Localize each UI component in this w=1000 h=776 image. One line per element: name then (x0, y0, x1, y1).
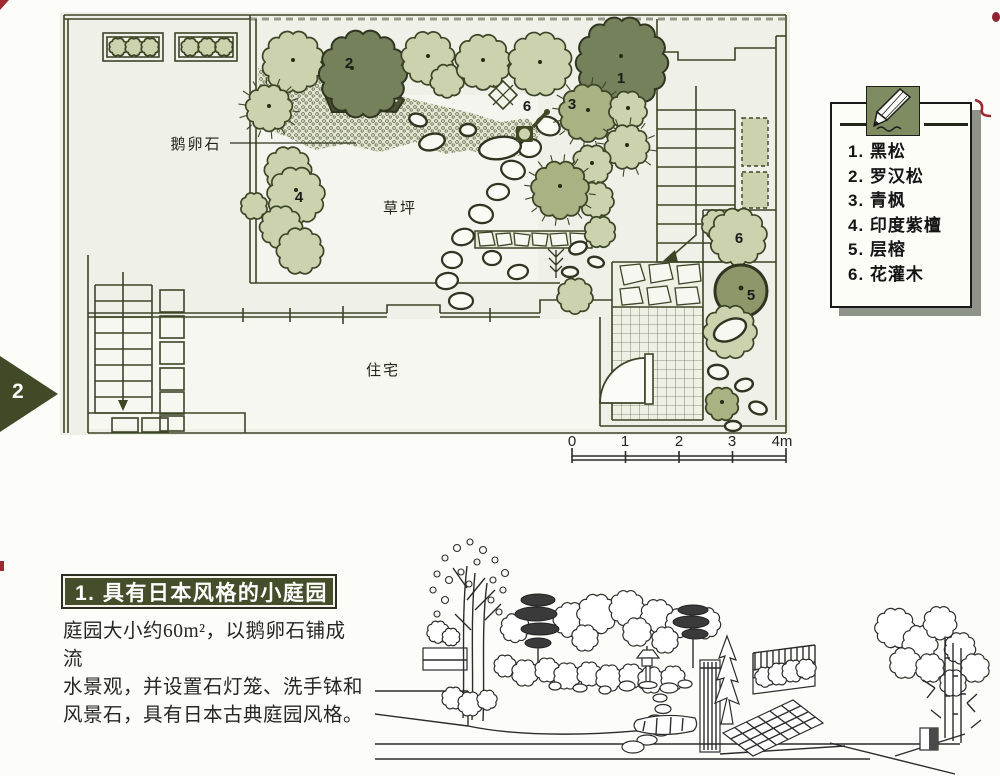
plant-marker-2: 2 (345, 55, 353, 72)
page-side-marker: 2 (0, 356, 58, 432)
legend-box: 1. 黑松 2. 罗汉松 3. 青枫 4. 印度紫檀 5. 层榕 6. 花灌木 (830, 102, 972, 308)
sketch-railing (753, 645, 816, 694)
section-description: 庭园大小约60m²，以鹅卵石铺成流 水景观，并设置石灯笼、洗手钵和 风景石，具有… (63, 618, 363, 730)
description-line: 风景石，具有日本古典庭园风格。 (63, 702, 363, 730)
label-cobblestone: 鹅卵石 (170, 136, 221, 153)
label-lawn: 草坪 (383, 200, 417, 217)
legend-item: 3. 青枫 (848, 189, 942, 214)
description-line: 庭园大小约60m²，以鹅卵石铺成流 (63, 618, 363, 674)
scale-3: 3 (728, 433, 736, 450)
legend-item: 4. 印度紫檀 (848, 214, 942, 239)
perspective-sketch (375, 528, 1000, 776)
legend-card: 1. 黑松 2. 罗汉松 3. 青枫 4. 印度紫檀 5. 层榕 6. 花灌木 (830, 102, 972, 308)
side-marker-number: 2 (12, 380, 24, 404)
legend-rule-left (840, 123, 868, 126)
sketch-tile-path (723, 700, 823, 756)
scale-0: 0 (568, 433, 576, 450)
section-title: 1. 具有日本风格的小庭园 (75, 582, 328, 605)
plant-marker-3: 3 (568, 96, 576, 113)
label-house: 住宅 (366, 362, 400, 379)
scan-mark-right (972, 96, 998, 120)
legend-item: 6. 花灌木 (848, 263, 942, 288)
scale-1: 1 (621, 433, 629, 450)
scale-2: 2 (675, 433, 683, 450)
legend-item: 5. 层榕 (848, 238, 942, 263)
legend-rule-right (924, 123, 968, 126)
scale-bar: 0 1 2 3 4m (568, 433, 793, 463)
sketch-right-trees (875, 607, 989, 750)
scale-4m: 4m (772, 433, 793, 450)
legend-list: 1. 黑松 2. 罗汉松 3. 青枫 4. 印度紫檀 5. 层榕 6. 花灌木 (848, 140, 942, 287)
pencil-icon (866, 86, 920, 136)
legend-item: 1. 黑松 (848, 140, 942, 165)
section-title-banner: 1. 具有日本风格的小庭园 (63, 576, 335, 607)
plant-marker-5: 5 (747, 287, 755, 304)
legend-item: 2. 罗汉松 (848, 165, 942, 190)
scan-mark-left-edge (0, 560, 6, 572)
plant-marker-6-top: 6 (523, 98, 531, 115)
scan-mark-top-right (988, 10, 1000, 24)
scan-mark-top-left (0, 0, 14, 14)
plant-marker-4: 4 (295, 189, 304, 206)
plant-marker-1: 1 (617, 70, 625, 87)
plant-marker-6-right: 6 (735, 230, 743, 247)
book-page: { "page": { "side_marker": "2" }, "plan"… (0, 0, 1000, 776)
description-line: 水景观，并设置石灯笼、洗手钵和 (63, 674, 363, 702)
side-marker-triangle (0, 356, 58, 432)
sketch-leaf-dots (430, 539, 509, 617)
sketch-left-planter (423, 621, 467, 670)
